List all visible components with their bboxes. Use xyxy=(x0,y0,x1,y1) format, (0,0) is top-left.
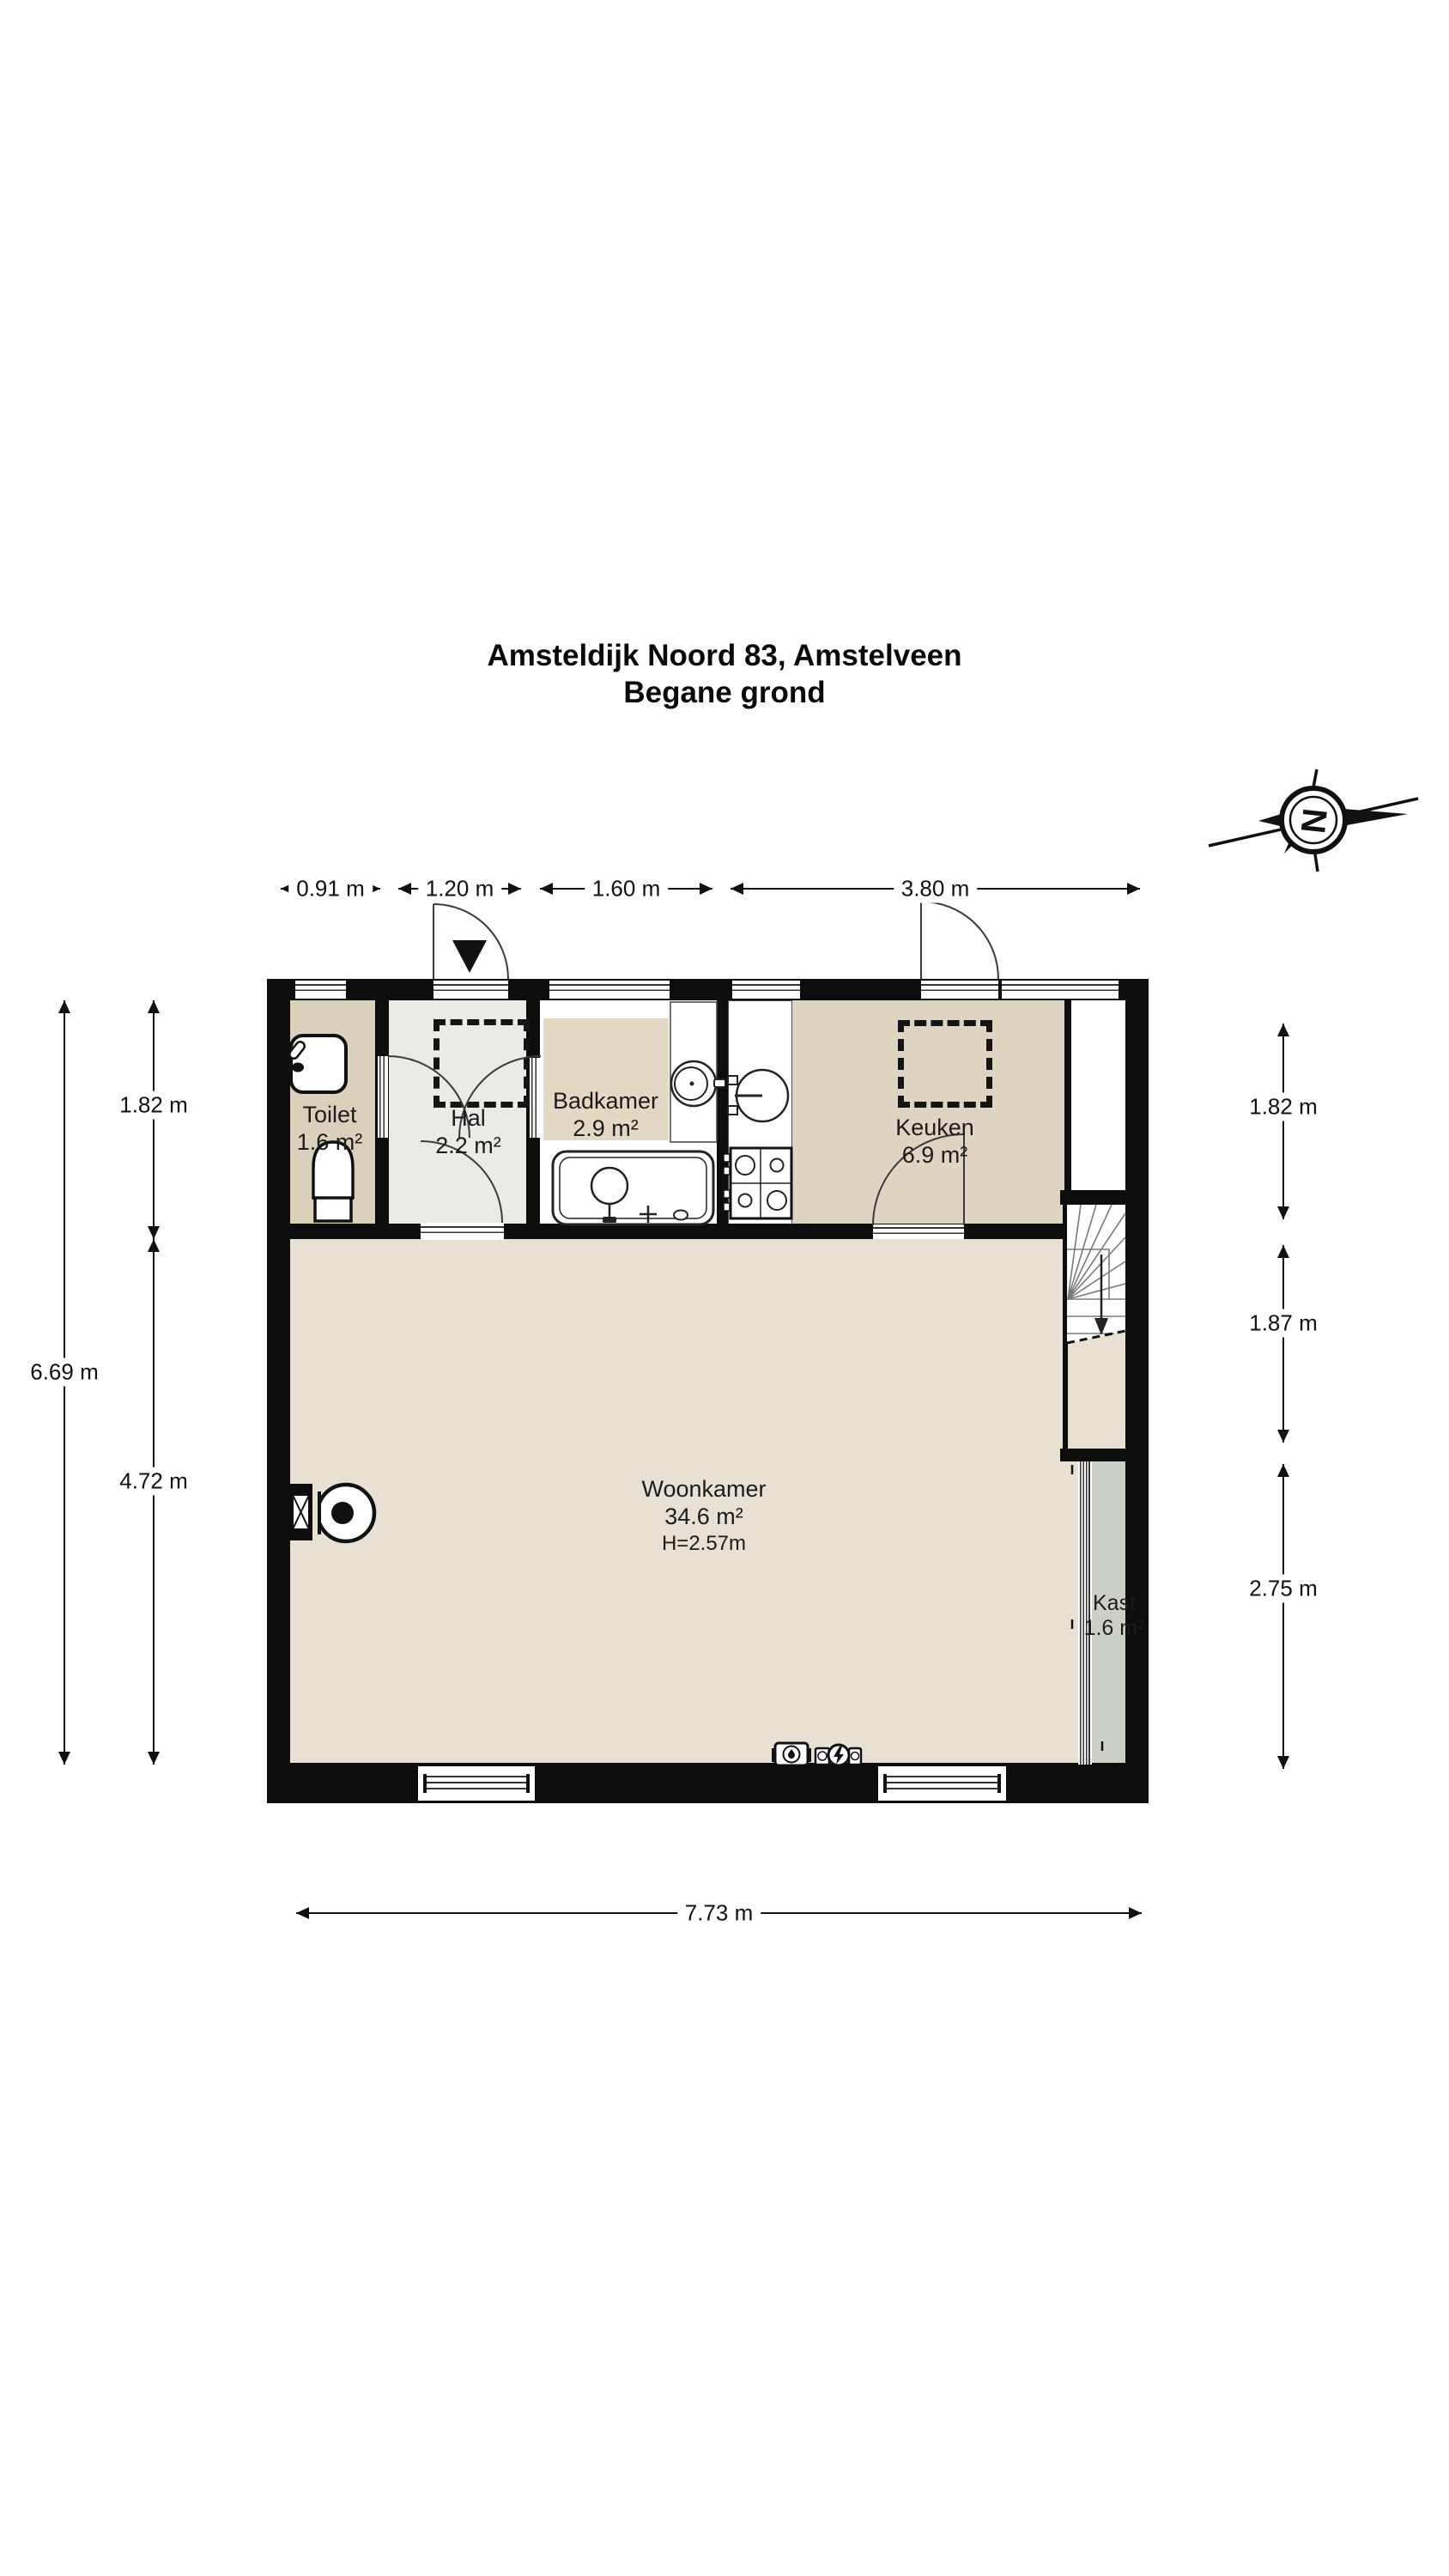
entrance-arrow-icon xyxy=(452,940,487,973)
dim-value: 1.87 m xyxy=(1241,1309,1325,1338)
dim-value: 0.91 m xyxy=(288,875,373,903)
room-name: Toilet xyxy=(282,1101,377,1128)
kast-label: Kast 1.6 m² xyxy=(1067,1591,1161,1641)
room-name: Keuken xyxy=(866,1114,1003,1141)
room-name: Kast xyxy=(1067,1591,1161,1616)
room-area: 6.9 m² xyxy=(866,1141,1003,1169)
dim-top-2: 1.20 m xyxy=(398,878,521,899)
woonkamer-label: Woonkamer 34.6 m² H=2.57m xyxy=(601,1475,807,1558)
keuken-sink-icon xyxy=(728,1070,788,1121)
room-area: 2.9 m² xyxy=(530,1115,681,1142)
toilet-label: Toilet 1.6 m² xyxy=(282,1101,377,1156)
keuken-label: Keuken 6.9 m² xyxy=(866,1114,1003,1169)
badkamer-label: Badkamer 2.9 m² xyxy=(530,1087,681,1142)
dim-value: 1.60 m xyxy=(585,875,669,903)
dim-right-3: 2.75 m xyxy=(1273,1464,1294,1769)
dim-value: 7.73 m xyxy=(677,1899,761,1928)
dim-top-4: 3.80 m xyxy=(731,878,1140,899)
room-area: 1.6 m² xyxy=(282,1128,377,1156)
dim-value: 1.82 m xyxy=(112,1091,196,1120)
stove-icon xyxy=(724,1148,791,1218)
dim-right-2: 1.87 m xyxy=(1273,1245,1294,1443)
dim-top-3: 1.60 m xyxy=(540,878,712,899)
water-meter-icon xyxy=(772,1743,811,1765)
room-height: H=2.57m xyxy=(601,1530,807,1558)
dim-right-1: 1.82 m xyxy=(1273,1024,1294,1219)
dim-left-top: 1.82 m xyxy=(143,1000,164,1239)
plan-vector-overlay: N xyxy=(0,0,1449,2576)
room-name: Woonkamer xyxy=(601,1475,807,1503)
dim-value: 1.20 m xyxy=(418,875,502,903)
floorplan-page: Amsteldijk Noord 83, Amstelveen Begane g… xyxy=(0,0,1449,2576)
flue-vent-icon xyxy=(293,1495,309,1529)
hal-label: Hal 2.2 m² xyxy=(410,1104,526,1159)
compass-letter: N xyxy=(1294,806,1334,835)
fireplace-stove-icon xyxy=(312,1480,374,1546)
keuken-exterior-door-swing xyxy=(921,902,998,979)
toilet-sink-icon xyxy=(288,1036,346,1092)
dim-value: 1.82 m xyxy=(1241,1092,1325,1121)
dim-top-1: 0.91 m xyxy=(281,878,380,899)
stairs xyxy=(1067,1205,1125,1343)
electric-meter-icon xyxy=(815,1745,861,1765)
dim-value: 3.80 m xyxy=(894,875,978,903)
dim-bottom: 7.73 m xyxy=(296,1903,1142,1923)
room-area: 1.6 m² xyxy=(1067,1616,1161,1641)
room-area: 34.6 m² xyxy=(601,1503,807,1530)
dim-left-total: 6.69 m xyxy=(54,1000,75,1765)
room-area: 2.2 m² xyxy=(410,1132,526,1159)
dim-value: 4.72 m xyxy=(112,1467,196,1495)
dim-left-bottom: 4.72 m xyxy=(143,1239,164,1765)
dim-value: 2.75 m xyxy=(1241,1574,1325,1602)
bathtub-icon xyxy=(553,1151,713,1224)
compass-north-icon: N xyxy=(1209,769,1418,872)
room-name: Hal xyxy=(410,1104,526,1132)
room-name: Badkamer xyxy=(530,1087,681,1115)
dim-value: 6.69 m xyxy=(22,1358,106,1387)
